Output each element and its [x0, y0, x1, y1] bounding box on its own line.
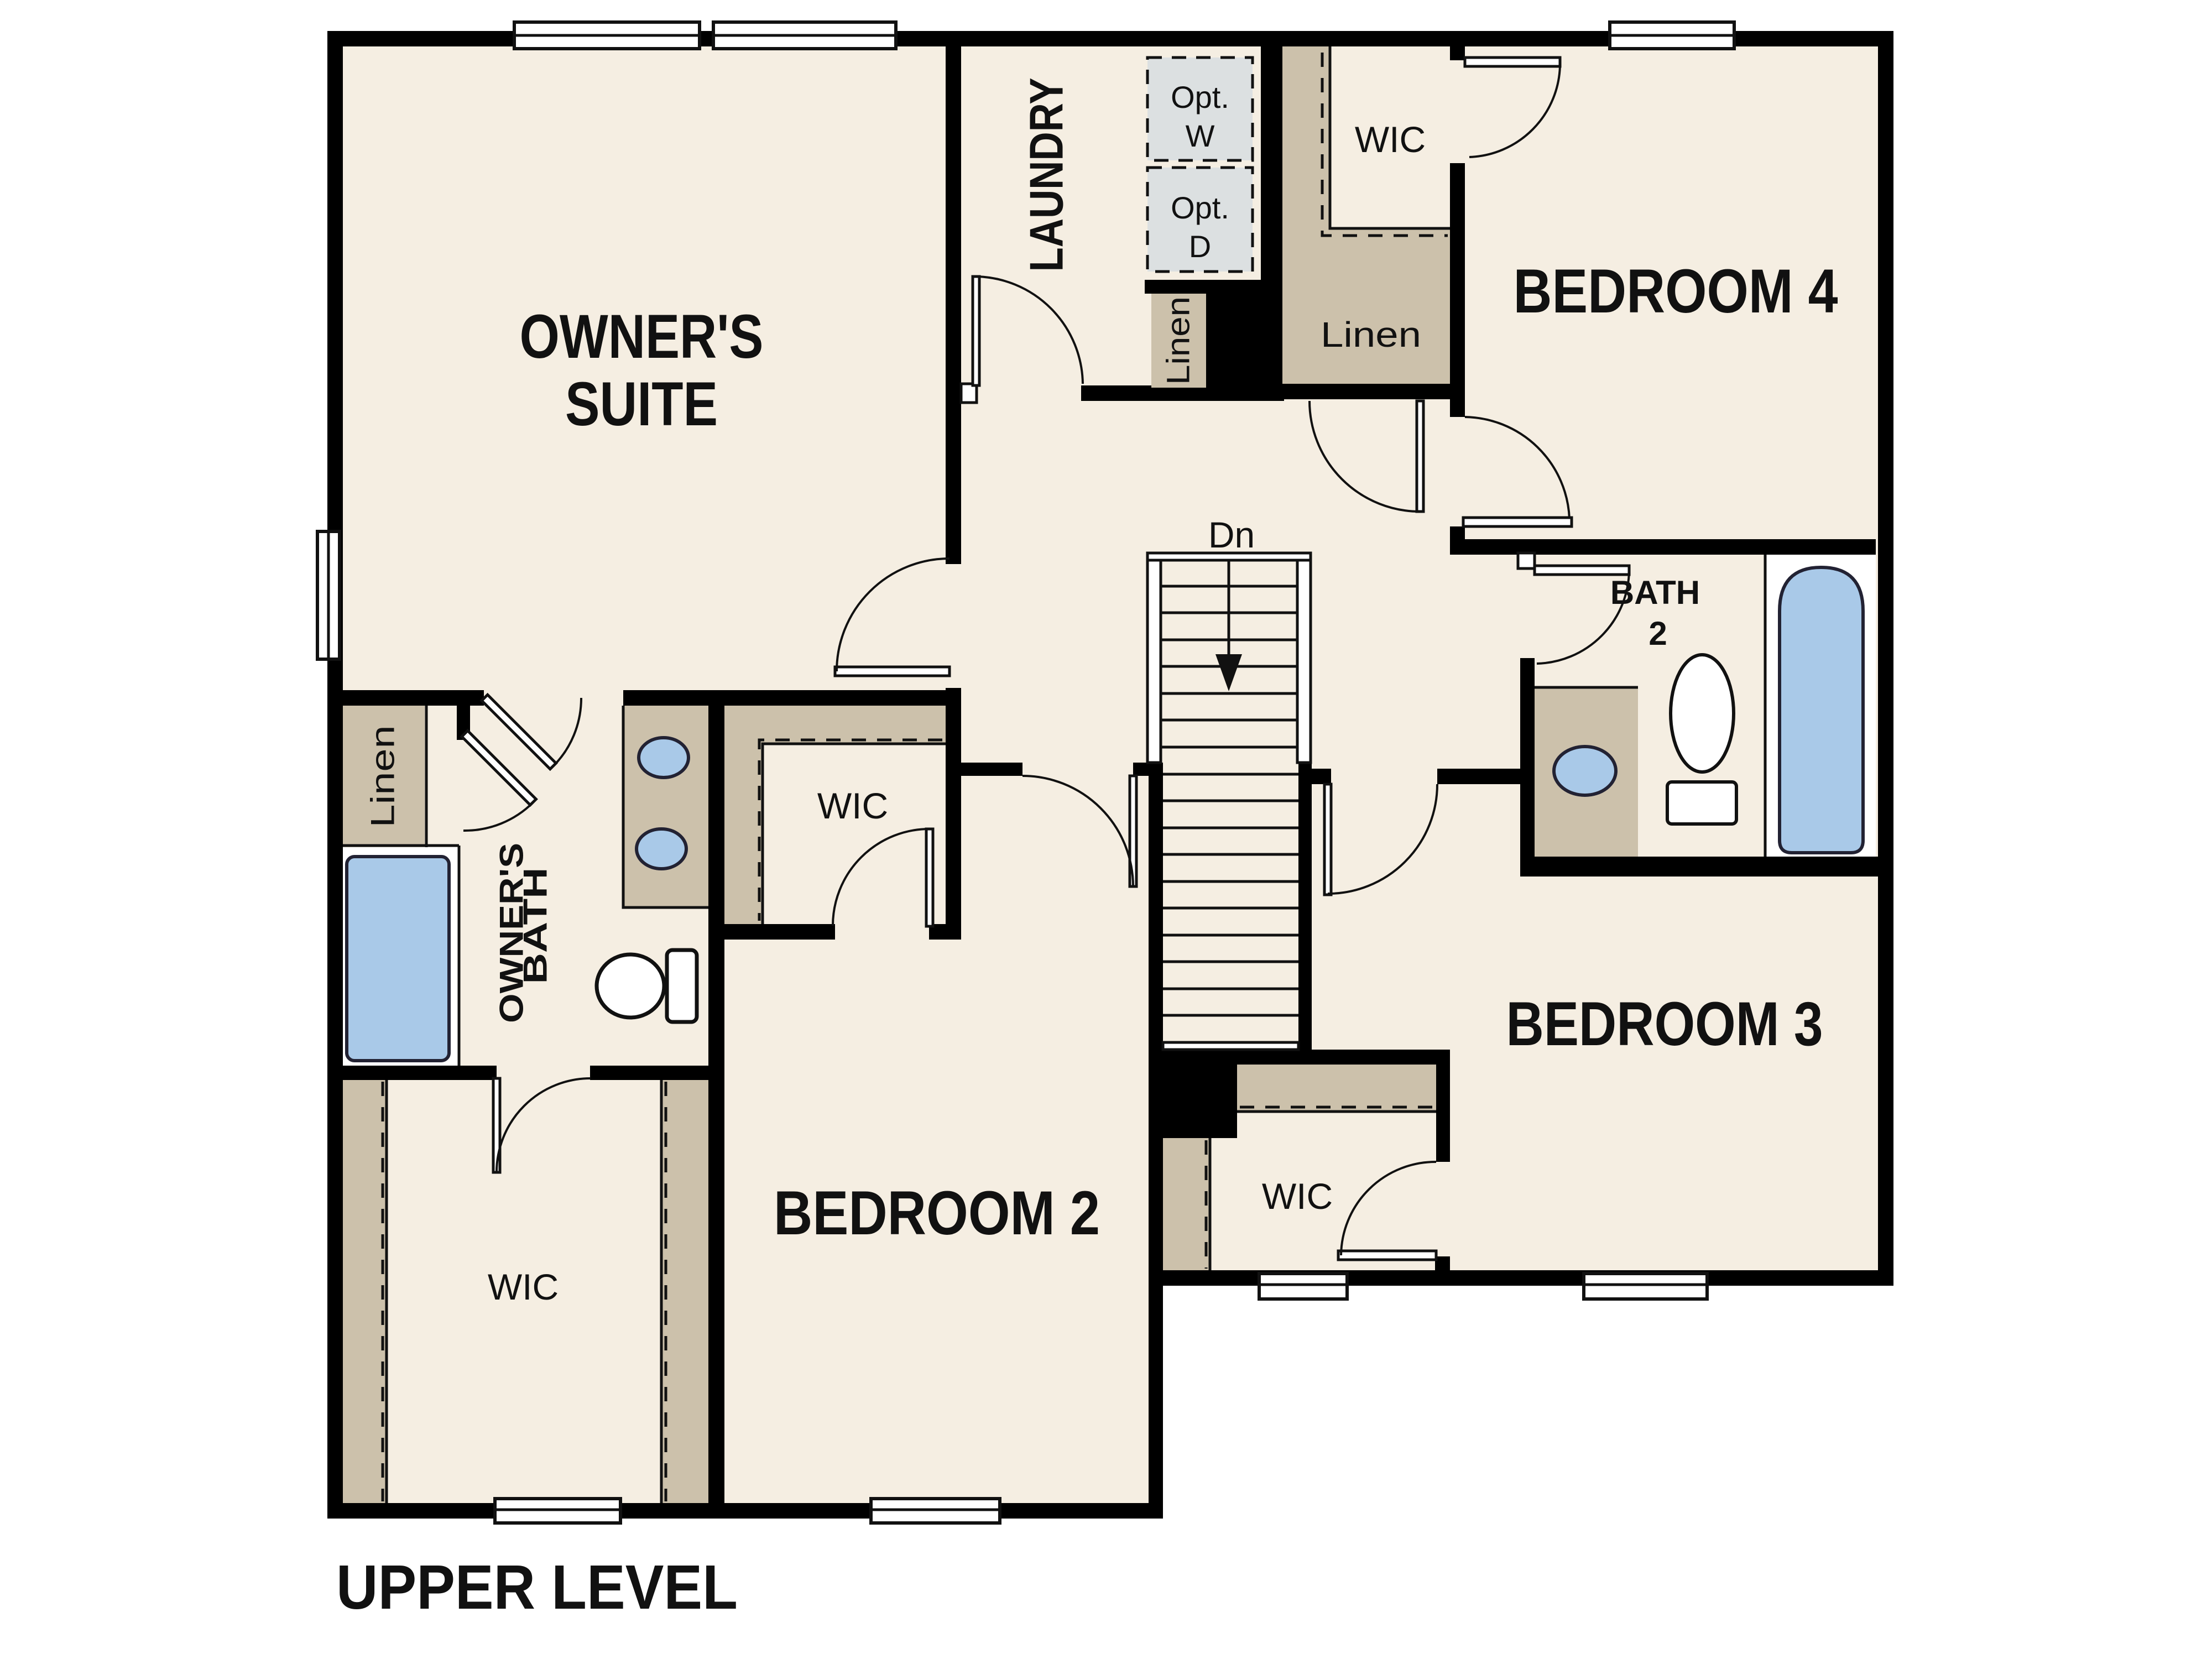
svg-text:WIC: WIC	[1355, 119, 1426, 160]
svg-text:Linen: Linen	[1321, 315, 1421, 354]
svg-text:W: W	[1186, 118, 1215, 153]
svg-text:OWNER'S: OWNER'S	[520, 302, 764, 371]
svg-text:Dn: Dn	[1208, 514, 1255, 555]
svg-text:2: 2	[1648, 615, 1667, 652]
svg-text:SUITE: SUITE	[565, 369, 718, 439]
svg-text:BEDROOM 2: BEDROOM 2	[774, 1178, 1100, 1248]
svg-text:Opt.: Opt.	[1171, 190, 1229, 225]
svg-text:UPPER LEVEL: UPPER LEVEL	[336, 1552, 738, 1622]
svg-text:WIC: WIC	[488, 1266, 559, 1307]
svg-text:LAUNDRY: LAUNDRY	[1021, 78, 1073, 272]
svg-text:BEDROOM 4: BEDROOM 4	[1514, 257, 1838, 326]
svg-text:BEDROOM 3: BEDROOM 3	[1506, 989, 1823, 1058]
svg-text:WIC: WIC	[817, 785, 888, 826]
svg-text:BATH: BATH	[1610, 574, 1700, 611]
svg-text:Opt.: Opt.	[1171, 80, 1229, 114]
svg-text:WIC: WIC	[1262, 1176, 1333, 1217]
svg-text:Linen: Linen	[1161, 296, 1197, 385]
svg-text:BATH: BATH	[517, 868, 554, 984]
svg-text:D: D	[1189, 229, 1211, 264]
svg-text:Linen: Linen	[364, 726, 401, 828]
